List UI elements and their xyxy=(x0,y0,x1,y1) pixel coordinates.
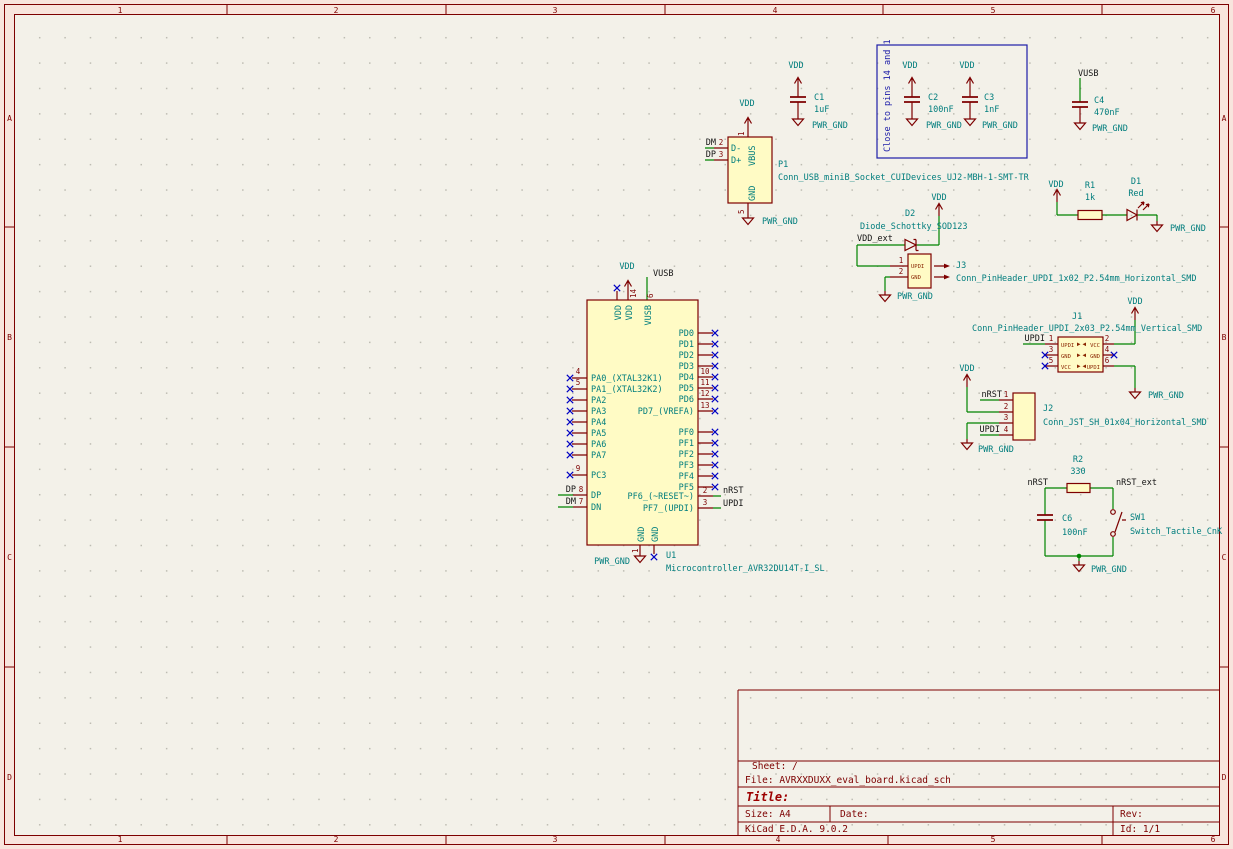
titleblock-generator: KiCad E.D.A. 9.0.2 xyxy=(745,824,848,835)
pin-name: D- xyxy=(731,144,741,154)
net-label-vdd-ext[interactable]: VDD_ext xyxy=(857,234,893,244)
pin-number: 5 xyxy=(576,378,581,387)
pin-number: 4 xyxy=(1004,425,1009,434)
pin-number: 2 xyxy=(899,267,904,276)
pin-number: 9 xyxy=(576,464,581,473)
pin-name: PF4 xyxy=(679,472,694,482)
pin-name: PA7 xyxy=(591,451,606,461)
vdd-label[interactable]: VDD xyxy=(931,193,946,203)
vdd-label[interactable]: VDD xyxy=(959,61,974,71)
pin-number: 1 xyxy=(631,548,640,553)
pin-name: VBUS xyxy=(748,146,758,166)
net-label-dp[interactable]: DP xyxy=(706,150,716,160)
frame-col-label: 4 xyxy=(773,6,778,15)
titleblock-size: Size: A4 xyxy=(745,809,791,820)
frame-row-label: C xyxy=(1222,553,1227,562)
pin-name: PA3 xyxy=(591,407,606,417)
pin-number: 1 xyxy=(1004,390,1009,399)
component-value[interactable]: Switch_Tactile_CnK xyxy=(1130,527,1223,537)
pin-name: PF6_(~RESET~) xyxy=(627,492,694,502)
pwr-gnd-symbol[interactable] xyxy=(1075,119,1086,130)
pin-name: PF7_(UPDI) xyxy=(643,504,694,514)
titleblock-rev: Rev: xyxy=(1120,809,1143,820)
pin-number: 3 xyxy=(1004,413,1009,422)
titleblock-sheet: Sheet: / xyxy=(752,761,798,772)
component-ref[interactable]: J2 xyxy=(1043,404,1053,414)
connector-j1[interactable]: UPDI 1 2 3 4 5 6 UPDI GND VCC VCC GND UP… xyxy=(972,312,1202,372)
pwr-gnd-label[interactable]: PWR_GND xyxy=(926,121,962,131)
pin-number: 4 xyxy=(576,367,581,376)
component-ref[interactable]: C1 xyxy=(814,93,824,103)
pwr-gnd-symbol[interactable] xyxy=(743,214,754,225)
pin-number: 5 xyxy=(737,209,746,214)
vdd-symbol[interactable] xyxy=(745,118,752,131)
component-ref[interactable]: U1 xyxy=(666,551,676,561)
capacitor-symbol[interactable] xyxy=(1072,102,1088,107)
pin-number: 3 xyxy=(703,498,708,507)
net-label-updi[interactable]: UPDI xyxy=(1025,334,1045,344)
titleblock-file: File: AVRXXDUXX_eval_board.kicad_sch xyxy=(745,775,951,786)
pin-name: PA2 xyxy=(591,396,606,406)
pin-number: 5 xyxy=(1049,356,1054,365)
vdd-label[interactable]: VDD xyxy=(788,61,803,71)
component-ref[interactable]: SW1 xyxy=(1130,513,1145,523)
capacitor-symbol[interactable] xyxy=(904,97,920,102)
pin-name: PD0 xyxy=(679,329,694,339)
pwr-gnd-symbol[interactable] xyxy=(1074,561,1085,572)
component-ref[interactable]: J3 xyxy=(956,261,966,271)
pin-number: 1 xyxy=(1049,334,1054,343)
frame-row-label: C xyxy=(7,553,12,562)
component-ref[interactable]: C3 xyxy=(984,93,994,103)
frame-col-label: 3 xyxy=(553,835,558,844)
component-value[interactable]: 1uF xyxy=(814,105,829,115)
pin-name: GND xyxy=(1090,354,1100,360)
pwr-gnd-label[interactable]: PWR_GND xyxy=(1148,391,1184,401)
frame-col-label: 3 xyxy=(553,6,558,15)
frame-col-label: 5 xyxy=(991,6,996,15)
vdd-label[interactable]: VDD xyxy=(739,99,754,109)
pwr-gnd-label[interactable]: PWR_GND xyxy=(982,121,1018,131)
component-value[interactable]: 100nF xyxy=(928,105,954,115)
pin-number: 12 xyxy=(700,389,709,398)
component-value[interactable]: Conn_PinHeader_UPDI_1x02_P2.54mm_Horizon… xyxy=(956,274,1197,284)
frame-col-label: 1 xyxy=(118,6,123,15)
pin-name: GND xyxy=(1061,354,1071,360)
pwr-gnd-symbol[interactable] xyxy=(1130,388,1141,399)
component-ref[interactable]: C6 xyxy=(1062,514,1072,524)
pin-name: PD1 xyxy=(679,340,694,350)
component-value[interactable]: 1k xyxy=(1085,193,1095,203)
pwr-gnd-label[interactable]: PWR_GND xyxy=(762,217,798,227)
net-label-nrst[interactable]: nRST xyxy=(982,390,1002,400)
pin-name: DP xyxy=(591,491,601,501)
pin-number: 2 xyxy=(1105,334,1110,343)
pin-name: PD6 xyxy=(679,395,694,405)
capacitor-symbol[interactable] xyxy=(962,97,978,102)
mcu-u1[interactable]: VDD VDD VUSB GND GND 14 6 1 PA0_(XTAL32K… xyxy=(566,285,825,574)
pin-number: 1 xyxy=(737,131,746,136)
pin-name: VDD xyxy=(625,305,635,320)
pin-name: PF0 xyxy=(679,428,694,438)
component-value[interactable]: Conn_JST_SH_01x04_Horizontal_SMD xyxy=(1043,418,1207,428)
component-value[interactable]: 100nF xyxy=(1062,528,1088,538)
title-block: Sheet: / File: AVRXXDUXX_eval_board.kica… xyxy=(738,690,1220,836)
pin-number: 1 xyxy=(899,256,904,265)
frame-col-label: 5 xyxy=(991,835,996,844)
component-value[interactable]: Conn_USB_miniB_Socket_CUIDevices_UJ2-MBH… xyxy=(778,173,1030,183)
pwr-gnd-symbol[interactable] xyxy=(962,439,973,450)
vusb-net-label[interactable]: VUSB xyxy=(653,269,673,279)
component-value[interactable]: Microcontroller_AVR32DU14T-I_SL xyxy=(666,564,825,574)
net-label-updi[interactable]: UPDI xyxy=(980,425,1000,435)
capacitor-c3[interactable]: C3 1nF xyxy=(962,90,999,115)
vdd-symbol[interactable] xyxy=(1132,308,1139,321)
frame-col-label: 4 xyxy=(776,835,781,844)
vdd-label[interactable]: VDD xyxy=(1127,297,1142,307)
net-label-updi[interactable]: UPDI xyxy=(723,499,743,509)
vdd-symbol[interactable] xyxy=(967,78,974,91)
pin-number: 8 xyxy=(579,485,584,494)
frame-row-label: D xyxy=(1222,773,1227,782)
pin-name: PD5 xyxy=(679,384,694,394)
pin-name: VUSB xyxy=(644,305,654,325)
frame-row-label: B xyxy=(7,333,12,342)
vdd-label[interactable]: VDD xyxy=(619,262,634,272)
net-label-nrst[interactable]: nRST xyxy=(723,486,743,496)
net-label-nrst[interactable]: nRST xyxy=(1028,478,1048,488)
pin-name: VDD xyxy=(614,305,624,320)
pin-name: PF2 xyxy=(679,450,694,460)
pwr-gnd-symbol[interactable] xyxy=(880,291,891,302)
frame-col-label: 6 xyxy=(1211,835,1216,844)
pin-number: 11 xyxy=(700,378,709,387)
kicad-schematic-canvas[interactable]: 1 2 3 4 5 6 1 2 3 4 5 6 A B C D A B C D … xyxy=(0,0,1233,849)
component-ref[interactable]: R2 xyxy=(1073,455,1083,465)
pin-number: 3 xyxy=(719,150,724,159)
vdd-symbol[interactable] xyxy=(909,78,916,91)
pin-name: PF1 xyxy=(679,439,694,449)
pin-name: UPDI xyxy=(911,264,924,270)
net-label-dm[interactable]: DM xyxy=(706,138,716,148)
component-ref[interactable]: R1 xyxy=(1085,181,1095,191)
component-ref[interactable]: J1 xyxy=(1072,312,1082,322)
pin-name: GND xyxy=(748,186,758,201)
frame-row-label: A xyxy=(1222,114,1227,123)
net-label-dm[interactable]: DM xyxy=(566,497,576,507)
pin-name: PD2 xyxy=(679,351,694,361)
pin-name: PD4 xyxy=(679,373,694,383)
pwr-gnd-label[interactable]: PWR_GND xyxy=(1092,124,1128,134)
pin-name: PA1_(XTAL32K2) xyxy=(591,385,663,395)
net-label-dp[interactable]: DP xyxy=(566,485,576,495)
frame-col-label: 2 xyxy=(334,6,339,15)
pin-number: 6 xyxy=(1105,356,1110,365)
component-value[interactable]: 470nF xyxy=(1094,108,1120,118)
pin-number: 2 xyxy=(1004,402,1009,411)
pin-name: PC3 xyxy=(591,471,606,481)
pin-name: UPDI xyxy=(1087,365,1100,371)
vdd-symbol[interactable] xyxy=(936,204,943,217)
pwr-gnd-label[interactable]: PWR_GND xyxy=(594,557,630,567)
capacitor-symbol[interactable] xyxy=(790,97,806,102)
capacitor-c1[interactable]: C1 1uF xyxy=(790,90,829,115)
component-ref[interactable]: D1 xyxy=(1131,177,1141,187)
resistor-r2[interactable]: R2 330 nRST nRST_ext xyxy=(1028,455,1157,493)
pwr-gnd-symbol[interactable] xyxy=(965,115,976,126)
pin-name: PA0_(XTAL32K1) xyxy=(591,374,663,384)
pwr-gnd-symbol[interactable] xyxy=(793,115,804,126)
pin-name: VCC xyxy=(1061,365,1071,371)
vdd-label[interactable]: VDD xyxy=(959,364,974,374)
pin-name: PD7_(VREFA) xyxy=(638,407,694,417)
component-ref[interactable]: D2 xyxy=(905,209,915,219)
pin-name: PD3 xyxy=(679,362,694,372)
frame-col-label: 2 xyxy=(334,835,339,844)
component-value[interactable]: Red xyxy=(1128,189,1143,199)
led-d1[interactable]: D1 Red xyxy=(1127,177,1149,221)
vdd-symbol[interactable] xyxy=(795,78,802,91)
pwr-gnd-label[interactable]: PWR_GND xyxy=(897,292,933,302)
connector-p1[interactable]: DM DP 2 3 1 5 D- D+ VBUS GND P1 Conn_USB… xyxy=(706,130,1030,214)
titleblock-id: Id: 1/1 xyxy=(1120,824,1160,835)
pin-number: 7 xyxy=(579,497,584,506)
capacitor-c2[interactable]: C2 100nF xyxy=(904,90,954,115)
component-value[interactable]: Diode_Schottky_SOD123 xyxy=(860,222,967,232)
frame-col-label: 6 xyxy=(1211,6,1216,15)
titleblock-date: Date: xyxy=(840,809,869,820)
pin-name: GND xyxy=(637,527,647,542)
pin-number: 13 xyxy=(700,401,709,410)
pin-name: PA6 xyxy=(591,440,606,450)
vdd-symbol[interactable] xyxy=(1054,190,1061,203)
pin-number: 14 xyxy=(629,288,638,298)
pin-name: GND xyxy=(651,527,661,542)
pin-name: PA5 xyxy=(591,429,606,439)
pwr-gnd-label[interactable]: PWR_GND xyxy=(978,445,1014,455)
pin-name: GND xyxy=(911,275,921,281)
pin-number: 4 xyxy=(1105,345,1110,354)
note-box[interactable]: Close to pins 14 and 1 xyxy=(877,39,1027,158)
diode-d2[interactable]: D2 Diode_Schottky_SOD123 VDD_ext xyxy=(857,209,967,251)
component-ref[interactable]: C2 xyxy=(928,93,938,103)
wire-junction xyxy=(1077,554,1082,559)
frame-row-label: D xyxy=(7,773,12,782)
net-label-nrst-ext[interactable]: nRST_ext xyxy=(1116,478,1157,488)
pin-number: 2 xyxy=(703,486,708,495)
pwr-gnd-symbol[interactable] xyxy=(1152,221,1163,232)
connector-j3[interactable]: 1 2 UPDI GND J3 Conn_PinHeader_UPDI_1x02… xyxy=(890,254,1197,288)
note-text[interactable]: Close to pins 14 and 1 xyxy=(883,39,893,152)
capacitor-symbol[interactable] xyxy=(1037,515,1053,520)
component-ref[interactable]: C4 xyxy=(1094,96,1104,106)
switch-sw1[interactable]: SW1 Switch_Tactile_CnK xyxy=(1111,510,1223,537)
frame-row-label: A xyxy=(7,114,12,123)
component-value[interactable]: 330 xyxy=(1070,467,1085,477)
pin-name: PF3 xyxy=(679,461,694,471)
pin-number: 3 xyxy=(1049,345,1054,354)
pin-name: PA4 xyxy=(591,418,606,428)
pin-number: 6 xyxy=(646,293,655,298)
titleblock-title: Title: xyxy=(746,790,789,804)
capacitor-c4[interactable]: C4 470nF xyxy=(1072,96,1120,119)
frame-row-label: B xyxy=(1222,333,1227,342)
vdd-symbol[interactable] xyxy=(964,375,971,388)
resistor-r1[interactable]: R1 1k xyxy=(1078,181,1102,220)
component-value[interactable]: Conn_PinHeader_UPDI_2x03_P2.54mm_Vertica… xyxy=(972,324,1202,334)
pwr-gnd-label[interactable]: PWR_GND xyxy=(1170,224,1206,234)
pin-number: 2 xyxy=(719,138,724,147)
pwr-gnd-symbol[interactable] xyxy=(907,115,918,126)
component-ref[interactable]: P1 xyxy=(778,160,788,170)
pin-name: DN xyxy=(591,503,601,513)
pin-name: D+ xyxy=(731,156,741,166)
pwr-gnd-label[interactable]: PWR_GND xyxy=(1091,565,1127,575)
vdd-label[interactable]: VDD xyxy=(1048,180,1063,190)
vdd-label[interactable]: VDD xyxy=(902,61,917,71)
pwr-gnd-label[interactable]: PWR_GND xyxy=(812,121,848,131)
pin-number: 10 xyxy=(700,367,710,376)
pin-name: VCC xyxy=(1090,343,1100,349)
frame-col-label: 1 xyxy=(118,835,123,844)
pin-name: UPDI xyxy=(1061,343,1074,349)
component-value[interactable]: 1nF xyxy=(984,105,999,115)
vusb-net-label[interactable]: VUSB xyxy=(1078,69,1098,79)
